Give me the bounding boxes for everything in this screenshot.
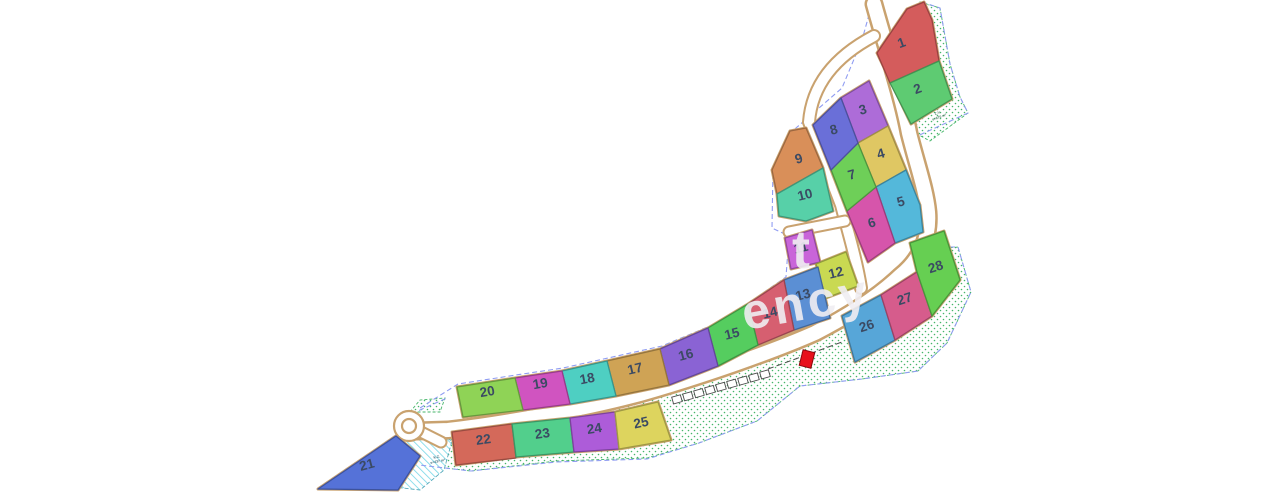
roundabout-island xyxy=(402,419,416,433)
lot-label-19: 19 xyxy=(532,375,549,392)
lot-label-24: 24 xyxy=(586,420,604,437)
map-canvas: 1234567891011121314151617181920212223242… xyxy=(0,0,1280,501)
lot-label-23: 23 xyxy=(534,425,551,442)
lot-label-22: 22 xyxy=(475,431,492,448)
watermark-text: t xyxy=(792,220,810,280)
lot-label-20: 20 xyxy=(479,383,496,400)
green-space-stipple-zone xyxy=(410,398,445,412)
site-plan-map: 1234567891011121314151617181920212223242… xyxy=(0,0,1280,501)
